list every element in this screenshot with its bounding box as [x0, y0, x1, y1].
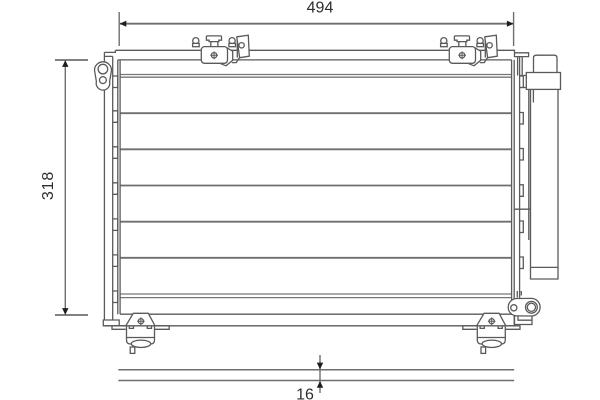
svg-text:318: 318 — [40, 171, 57, 200]
svg-text:494: 494 — [307, 0, 334, 17]
svg-text:16: 16 — [296, 387, 314, 400]
